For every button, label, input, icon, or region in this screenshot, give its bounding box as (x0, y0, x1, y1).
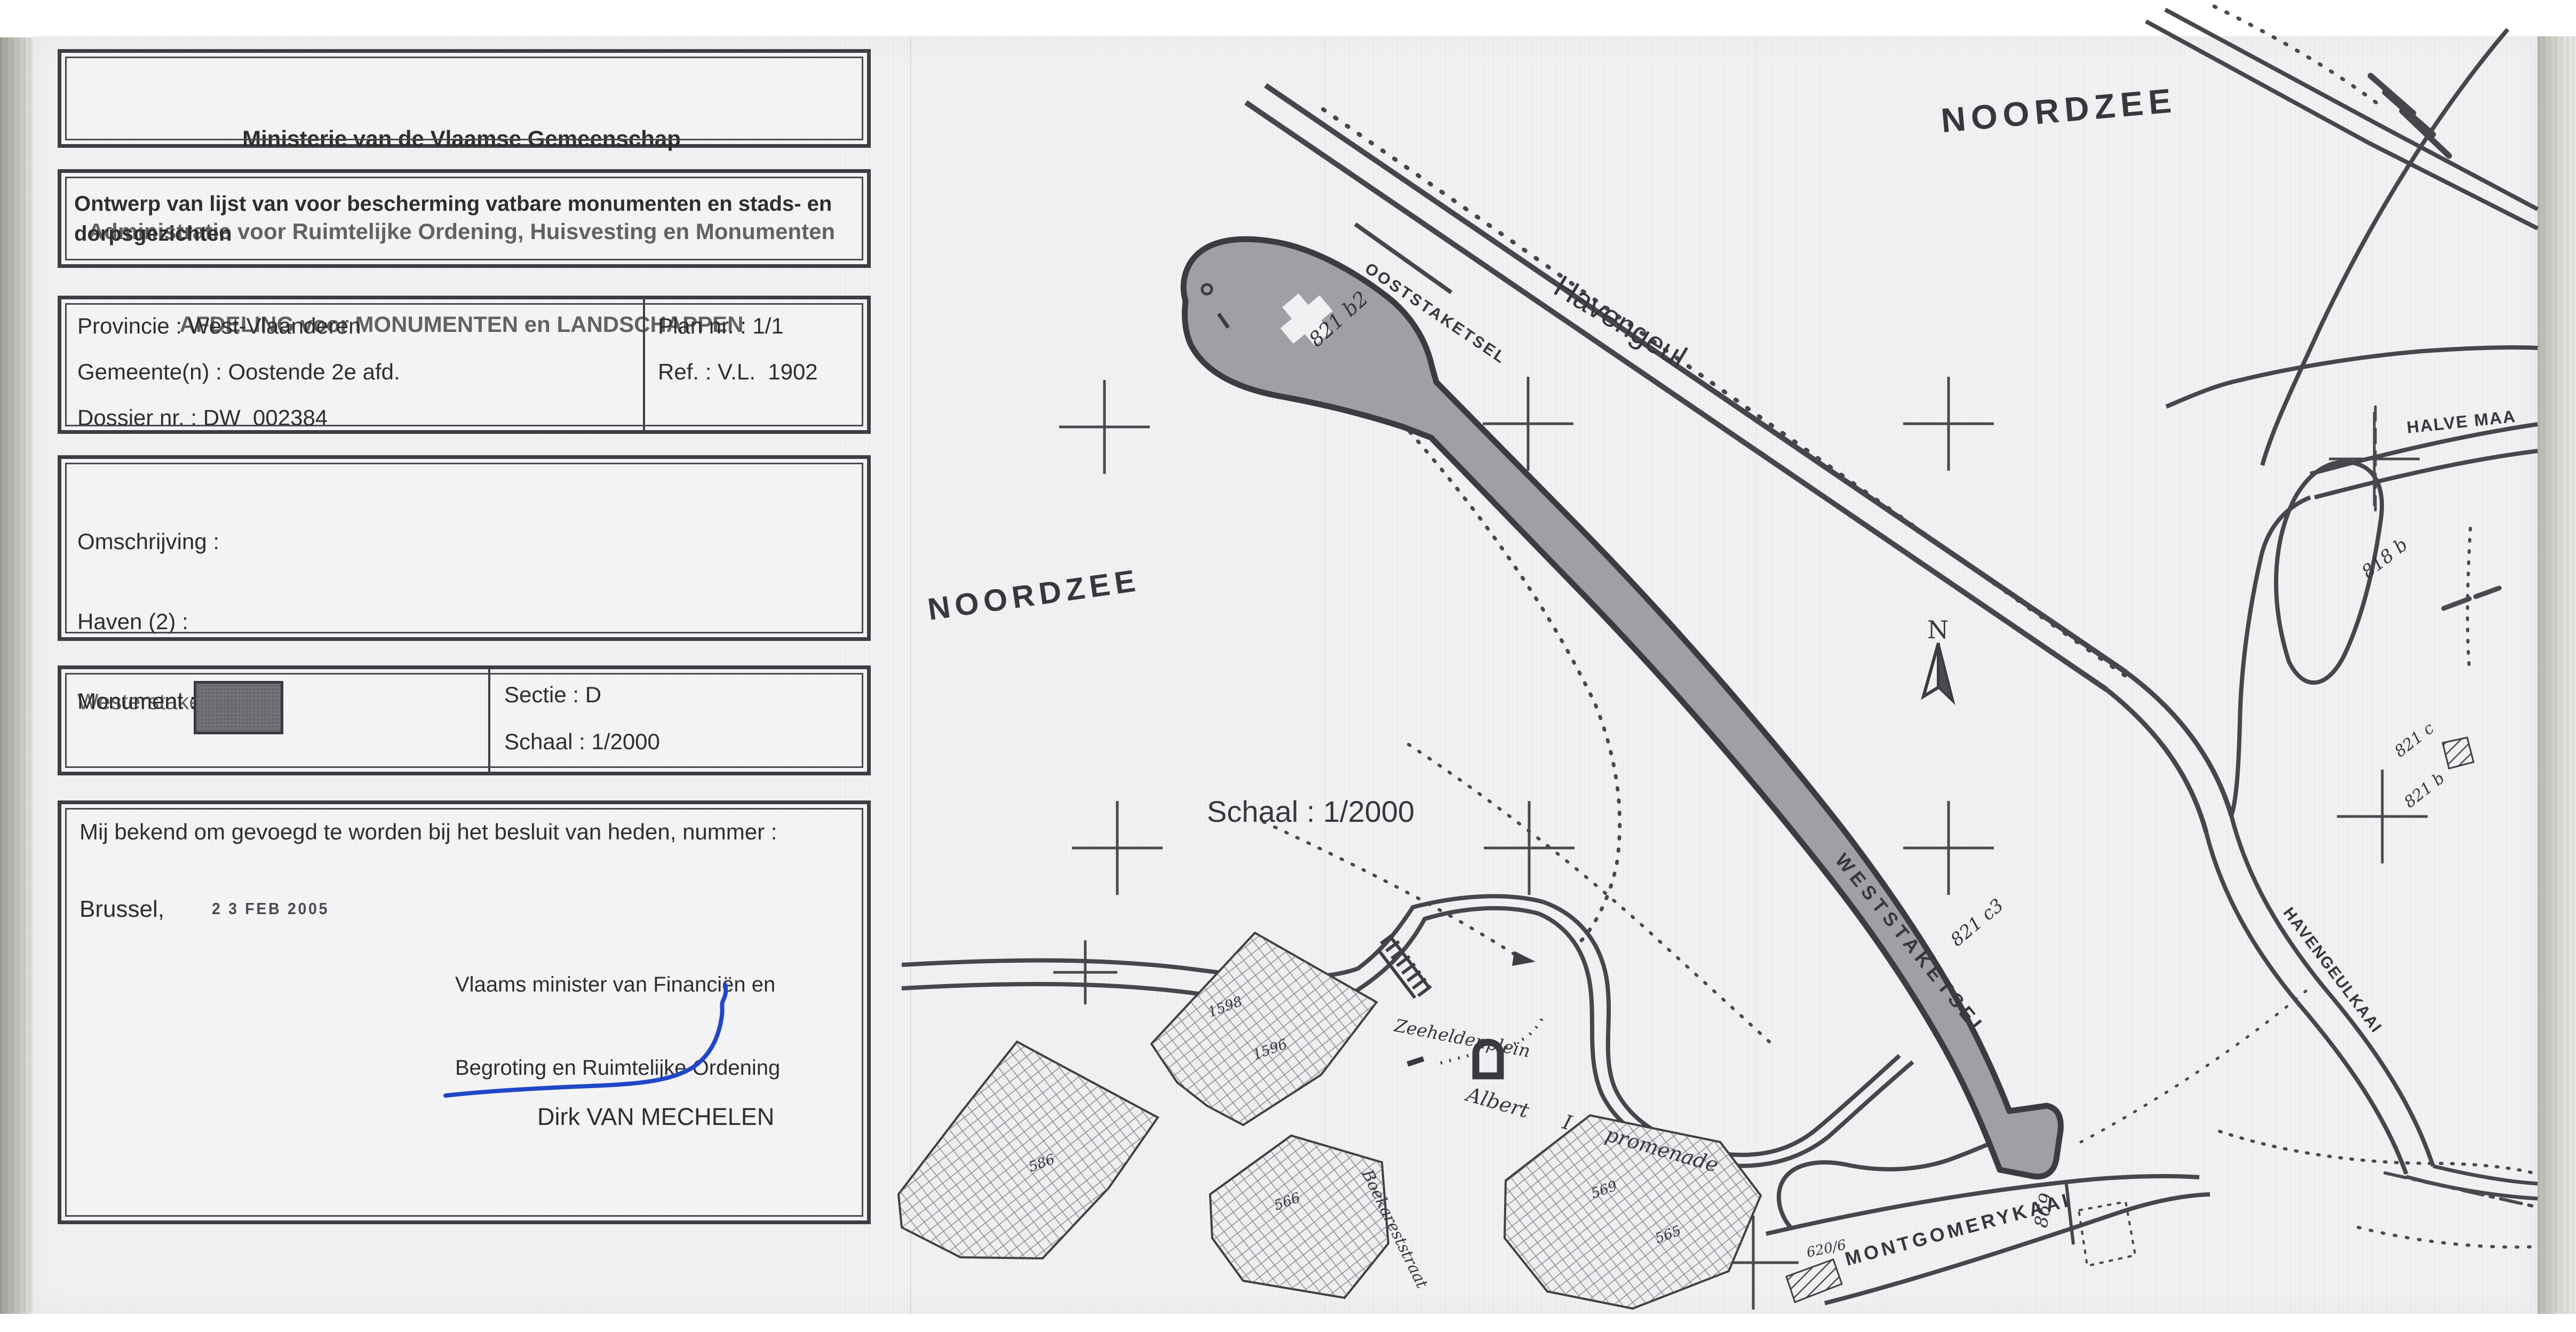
description-line1: Haven (2) : (77, 608, 243, 635)
label-map-scale: Schaal : 1/2000 (1207, 795, 1414, 828)
subject-text: Ontwerp van lijst van voor bescherming v… (74, 189, 852, 249)
column-divider (488, 669, 490, 772)
municipality-field: Gemeente(n) : Oostende 2e afd. (77, 359, 400, 385)
schaal-field: Schaal : 1/2000 (504, 729, 660, 755)
decree-signature-box: Mij bekend om gevoegd te worden bij het … (58, 800, 871, 1224)
label-weststaketsel: WESTSTAKETSEL (1831, 849, 1993, 1042)
subject-box: Ontwerp van lijst van voor bescherming v… (58, 169, 871, 268)
dossier-box: Provincie : West-Vlaanderen Gemeente(n) … (58, 296, 871, 434)
cadastral-blocks (899, 933, 1761, 1309)
compass-arrow-fill (1938, 643, 1953, 702)
signature-area (61, 804, 867, 1220)
dossier-field: Dossier nr. : DW 002384 (77, 405, 328, 431)
ministry-title: Ministerie van de Vlaamse Gemeenschap (72, 123, 851, 154)
monument-color-swatch (194, 681, 283, 734)
harbour-roads (2146, 10, 2538, 1199)
parcel-620-6: 620/6 (1805, 1237, 1848, 1261)
description-title: Omschrijving : (77, 528, 243, 555)
parcel-821c-hatch (2443, 738, 2474, 768)
compass-arrow-outline (1923, 643, 1938, 696)
province-field: Provincie : West-Vlaanderen (77, 313, 361, 339)
compass-n-label: N (1927, 615, 1949, 644)
minister-signature (446, 985, 726, 1096)
sectie-field: Sectie : D (504, 682, 601, 708)
north-compass: N (1923, 615, 1953, 702)
plan-field: Plan nr. : 1/1 (658, 313, 784, 339)
parcel-821c: 821 c (2391, 719, 2438, 761)
label-noordzee-left: NOORDZEE (926, 563, 1142, 627)
monument-legend-box: Monument : Sectie : D Schaal : 1/2000 (58, 665, 871, 775)
parcel-821b: 821 b (2400, 769, 2448, 812)
label-zeeheldenplein: Zeeheldenplein (1392, 1014, 1532, 1061)
ref-field: Ref. : V.L. 1902 (658, 359, 818, 385)
city-block (1151, 933, 1377, 1125)
description-box: Omschrijving : Haven (2) : Westerstakets… (58, 455, 871, 641)
parcel-818b: 818 b (2358, 534, 2412, 583)
monument-label: Monument : (77, 688, 196, 714)
direction-arrow (1512, 951, 1536, 966)
column-divider (643, 299, 645, 430)
label-noordzee-right: NOORDZEE (1939, 81, 2178, 140)
city-block (899, 1042, 1158, 1258)
dock-ramp-hatch (1786, 1259, 1842, 1302)
city-block (1210, 1136, 1388, 1298)
jetty-groins (2371, 76, 2449, 156)
label-havengeulkaai: HAVENGEULKAAI (2279, 904, 2385, 1036)
parcel-821c3: 821 c3 (1946, 894, 2008, 950)
header-box: Ministerie van de Vlaamse Gemeenschap Ad… (58, 49, 871, 148)
signer-name: Dirk VAN MECHELEN (537, 1103, 774, 1131)
